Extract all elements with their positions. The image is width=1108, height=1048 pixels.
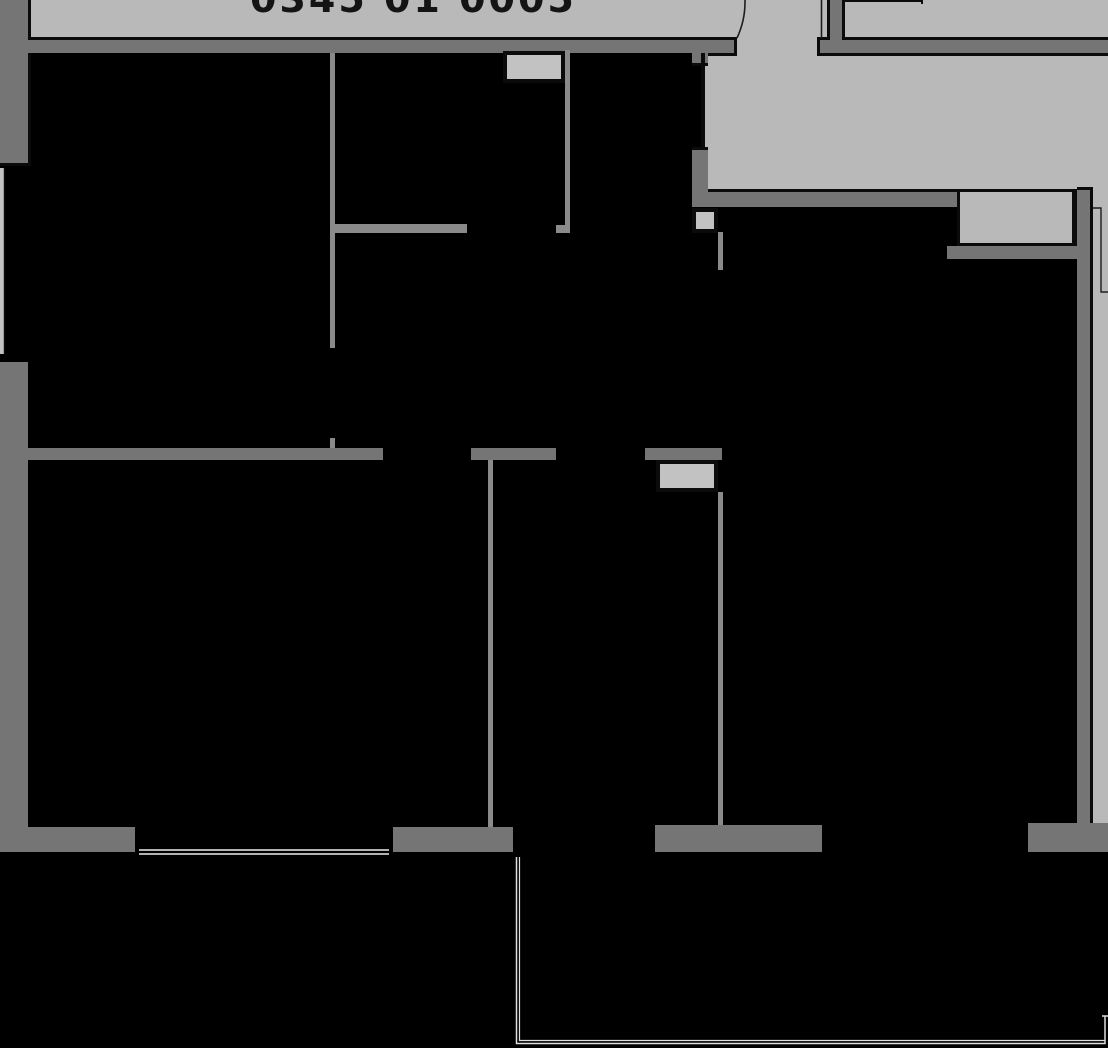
vent-shaft-icon-middle xyxy=(656,460,718,492)
room-right[interactable] xyxy=(723,207,1077,825)
wall-top-left-bottom-edge xyxy=(703,53,737,56)
stub-up xyxy=(830,0,842,40)
partition-vert-d-lower xyxy=(718,492,723,825)
wall-left-upper xyxy=(0,0,28,163)
bottomwall-seg2 xyxy=(393,827,513,852)
partition-vert-a-stub xyxy=(330,438,335,448)
terrace-area[interactable] xyxy=(517,858,1105,1043)
wall-top-right-outline-bottom xyxy=(817,53,1108,56)
midwall-left xyxy=(28,448,383,460)
right-passage-area xyxy=(1093,192,1108,823)
partition-vert-c xyxy=(488,458,493,827)
midwall-right xyxy=(645,448,722,460)
wall-left-upper-end xyxy=(0,163,28,166)
entry-wall-horizontal xyxy=(703,192,957,207)
partition-vert-b xyxy=(565,50,570,225)
stub-up-outline-r xyxy=(842,0,845,40)
wall-top-left xyxy=(28,40,737,53)
vent-shaft-icon-top xyxy=(503,51,565,83)
partition-horiz-a xyxy=(333,224,467,233)
niche-recess xyxy=(960,192,1072,243)
entry-wall-vertical xyxy=(692,150,708,207)
pier-entry-top xyxy=(692,53,708,63)
floorplan-canvas: 0345 01 0005 xyxy=(0,0,1108,1048)
bottomwall-left-l xyxy=(0,827,135,852)
bottomwall-seg4 xyxy=(1028,823,1108,852)
wall-top-right xyxy=(820,40,1108,53)
wall-left-upper-edge xyxy=(28,0,31,166)
room-middle[interactable] xyxy=(335,233,718,448)
wall-right xyxy=(1077,190,1090,825)
partition-vert-a xyxy=(330,53,335,348)
bottomwall-seg3 xyxy=(655,825,822,852)
wall-right-outline-right xyxy=(1090,187,1093,823)
wall-below-niche xyxy=(947,246,1077,259)
room-bottom-middle[interactable] xyxy=(493,460,718,825)
wall-top-right-end xyxy=(817,37,820,56)
room-top-left[interactable] xyxy=(31,53,330,448)
room-bottom-left[interactable] xyxy=(31,460,488,825)
entry-boundary-line xyxy=(701,53,705,150)
pier-entry-top-edge xyxy=(692,63,708,66)
window-left-strip xyxy=(0,168,4,354)
plan-label: 0345 01 0005 xyxy=(250,0,577,21)
midwall-center xyxy=(471,448,556,460)
partition-vert-d-upper xyxy=(718,232,723,270)
partition-vert-b-foot xyxy=(556,225,570,233)
entry-hall-area xyxy=(703,0,1108,192)
vent-shaft-icon-entry xyxy=(692,208,718,233)
wall-left-lower xyxy=(0,362,28,852)
